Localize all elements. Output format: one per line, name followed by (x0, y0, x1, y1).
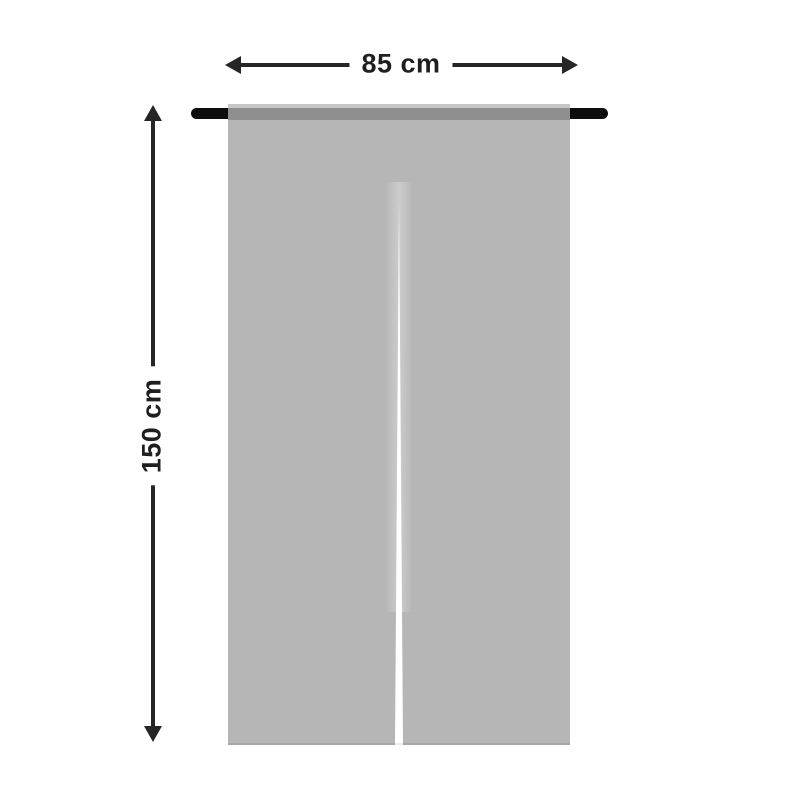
width-dimension-label: 85 cm (349, 51, 452, 78)
curtain-bottom-edge (228, 743, 570, 745)
curtain-panel (228, 104, 570, 745)
height-dimension-label: 150 cm (139, 367, 166, 486)
arrow-right-icon (562, 56, 578, 74)
arrow-down-icon (144, 726, 162, 742)
curtain-dimension-diagram: 85 cm 150 cm (0, 0, 800, 800)
curtain-rod-pocket (228, 108, 570, 120)
